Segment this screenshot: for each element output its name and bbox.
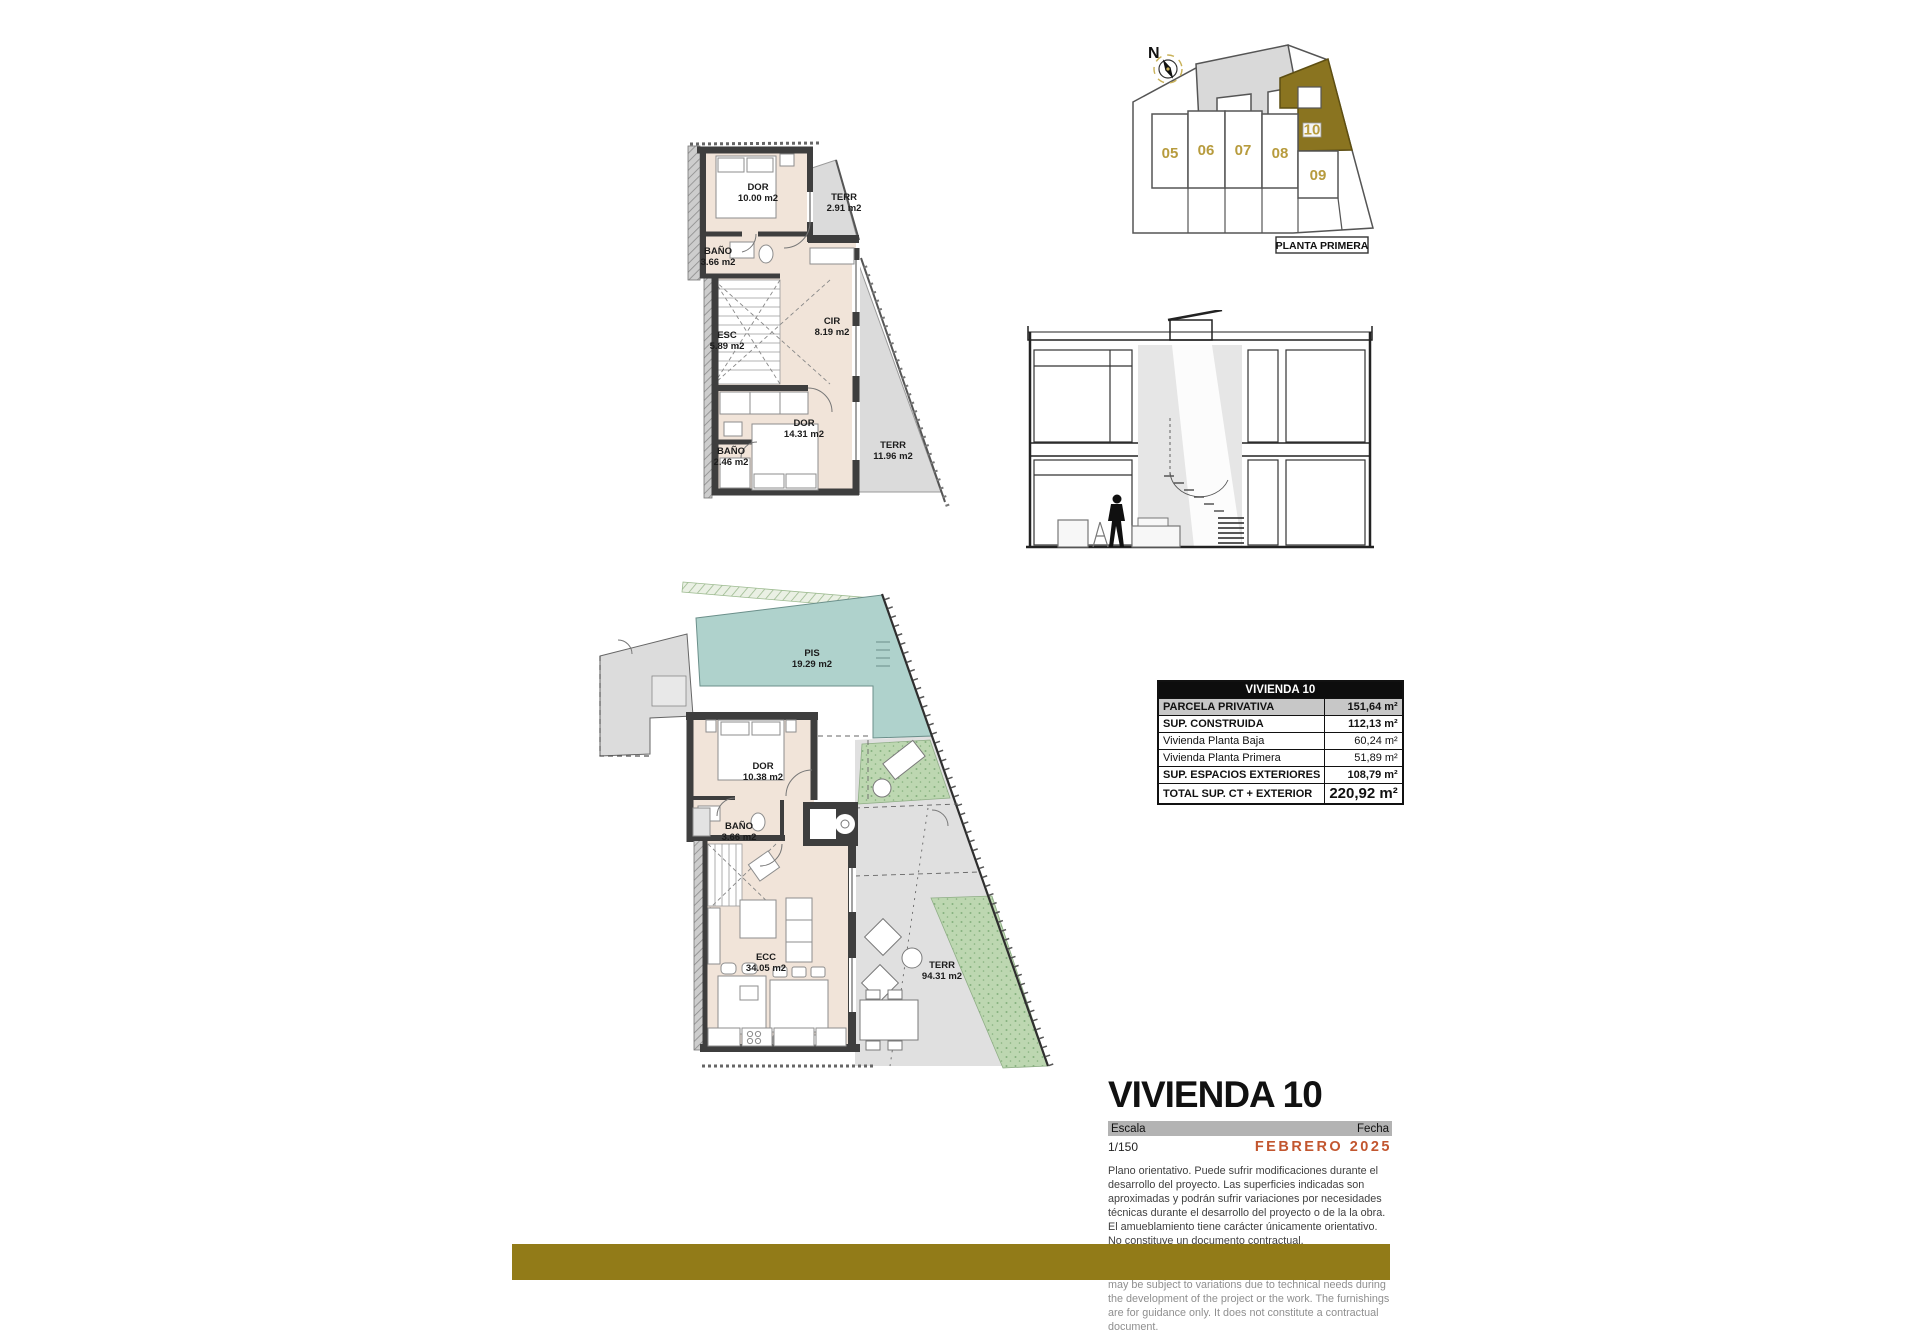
scale-label: Escala <box>1111 1123 1146 1135</box>
unit-09-label: 09 <box>1310 167 1327 184</box>
roof <box>1028 310 1372 340</box>
sheet-title: VIVIENDA 10 <box>1108 1076 1392 1113</box>
svg-text:19.29 m2: 19.29 m2 <box>792 659 832 670</box>
room-label-gf-bano: BAÑO 3.66 m2 <box>722 821 757 843</box>
scale-date-bar: Escala Fecha <box>1108 1121 1392 1136</box>
gf-party-wall-hatch <box>694 840 703 1050</box>
svg-text:BAÑO: BAÑO <box>717 446 745 457</box>
row-label: SUP. ESPACIOS EXTERIORES <box>1158 767 1325 784</box>
svg-text:34.05 m2: 34.05 m2 <box>746 963 786 974</box>
svg-text:TERR: TERR <box>929 960 955 971</box>
svg-text:8.19 m2: 8.19 m2 <box>815 327 850 338</box>
row-label: Vivienda Planta Primera <box>1158 750 1325 767</box>
unit-06-label: 06 <box>1198 142 1215 159</box>
date-value: FEBRERO 2025 <box>1255 1139 1392 1155</box>
compass-north-icon: N <box>1148 45 1182 83</box>
footer-accent-bar <box>512 1244 1390 1280</box>
svg-text:3.66 m2: 3.66 m2 <box>701 257 736 268</box>
human-figure <box>1108 495 1125 548</box>
unit-10-label: 10 <box>1304 122 1321 139</box>
svg-text:10.00 m2: 10.00 m2 <box>738 193 778 204</box>
utility-block <box>803 802 858 846</box>
room-label-terr1: TERR 2.91 m2 <box>827 192 862 214</box>
site-key-plan: 10 05 06 07 08 09 N PLANTA PRIMERA <box>1120 30 1400 270</box>
unit-05-label: 05 <box>1162 145 1179 162</box>
svg-text:PIS: PIS <box>804 648 819 659</box>
area-table-title-row: VIVIENDA 10 <box>1158 681 1403 699</box>
row-value: 112,13 m² <box>1325 716 1403 733</box>
disclaimer-spanish: Plano orientativo. Puede sufrir modifica… <box>1108 1164 1392 1248</box>
svg-text:TERR: TERR <box>880 440 906 451</box>
svg-text:TERR: TERR <box>831 192 857 203</box>
room-label-bano1: BAÑO 3.66 m2 <box>701 246 736 268</box>
svg-text:BAÑO: BAÑO <box>725 821 753 832</box>
table-row: PARCELA PRIVATIVA 151,64 m² <box>1158 699 1403 716</box>
svg-text:PLANTA PRIMERA: PLANTA PRIMERA <box>1276 240 1369 252</box>
svg-text:94.31 m2: 94.31 m2 <box>922 971 962 982</box>
row-label: PARCELA PRIVATIVA <box>1158 699 1325 716</box>
svg-text:DOR: DOR <box>752 761 773 772</box>
row-label: SUP. CONSTRUIDA <box>1158 716 1325 733</box>
table-row: SUP. CONSTRUIDA 112,13 m² <box>1158 716 1403 733</box>
svg-text:ESC: ESC <box>717 330 737 341</box>
svg-text:ECC: ECC <box>756 952 776 963</box>
row-label: Vivienda Planta Baja <box>1158 733 1325 750</box>
svg-text:DOR: DOR <box>793 418 814 429</box>
svg-text:5.89 m2: 5.89 m2 <box>710 341 745 352</box>
row-value: 51,89 m² <box>1325 750 1403 767</box>
row-label: TOTAL SUP. CT + EXTERIOR <box>1158 784 1325 805</box>
area-table-title: VIVIENDA 10 <box>1158 681 1403 699</box>
svg-text:3.66 m2: 3.66 m2 <box>722 832 757 843</box>
row-value: 60,24 m² <box>1325 733 1403 750</box>
date-label: Fecha <box>1357 1123 1389 1135</box>
svg-text:DOR: DOR <box>747 182 768 193</box>
table-row: Vivienda Planta Baja 60,24 m² <box>1158 733 1403 750</box>
row-value: 108,79 m² <box>1325 767 1403 784</box>
svg-text:10.38 m2: 10.38 m2 <box>743 772 783 783</box>
ground-floor-plan: PIS 19.29 m2 DOR 10.38 m2 BAÑO 3.66 m2 E… <box>590 568 1070 1073</box>
row-value: 220,92 m² <box>1325 784 1403 805</box>
table-row: SUP. ESPACIOS EXTERIORES 108,79 m² <box>1158 767 1403 784</box>
svg-text:CIR: CIR <box>824 316 841 327</box>
area-table: VIVIENDA 10 PARCELA PRIVATIVA 151,64 m² … <box>1157 680 1404 805</box>
table-row-total: TOTAL SUP. CT + EXTERIOR 220,92 m² <box>1158 784 1403 805</box>
svg-text:2.91 m2: 2.91 m2 <box>827 203 862 214</box>
svg-text:14.31 m2: 14.31 m2 <box>784 429 824 440</box>
svg-text:2.46 m2: 2.46 m2 <box>714 457 749 468</box>
front-terrace <box>600 634 693 756</box>
first-floor-plan: DOR 10.00 m2 TERR 2.91 m2 BAÑO 3.66 m2 E… <box>660 130 980 530</box>
title-block: VIVIENDA 10 Escala Fecha 1/150 FEBRERO 2… <box>1108 1076 1392 1334</box>
scale-value: 1/150 <box>1108 1140 1138 1154</box>
room-label-bano2: BAÑO 2.46 m2 <box>714 446 749 468</box>
unit-07-label: 07 <box>1235 142 1252 159</box>
svg-text:BAÑO: BAÑO <box>704 246 732 257</box>
plan-caption: PLANTA PRIMERA <box>1276 237 1369 253</box>
unit-08-label: 08 <box>1272 145 1289 162</box>
party-wall-hatch-left <box>704 278 712 498</box>
section-drawing <box>1020 310 1380 560</box>
table-row: Vivienda Planta Primera 51,89 m² <box>1158 750 1403 767</box>
party-wall-hatch-top <box>688 146 700 280</box>
row-value: 151,64 m² <box>1325 699 1403 716</box>
plan-sheet: { "site_plan": { "compass_label": "N", "… <box>0 0 1920 1280</box>
svg-text:11.96 m2: 11.96 m2 <box>873 451 913 462</box>
